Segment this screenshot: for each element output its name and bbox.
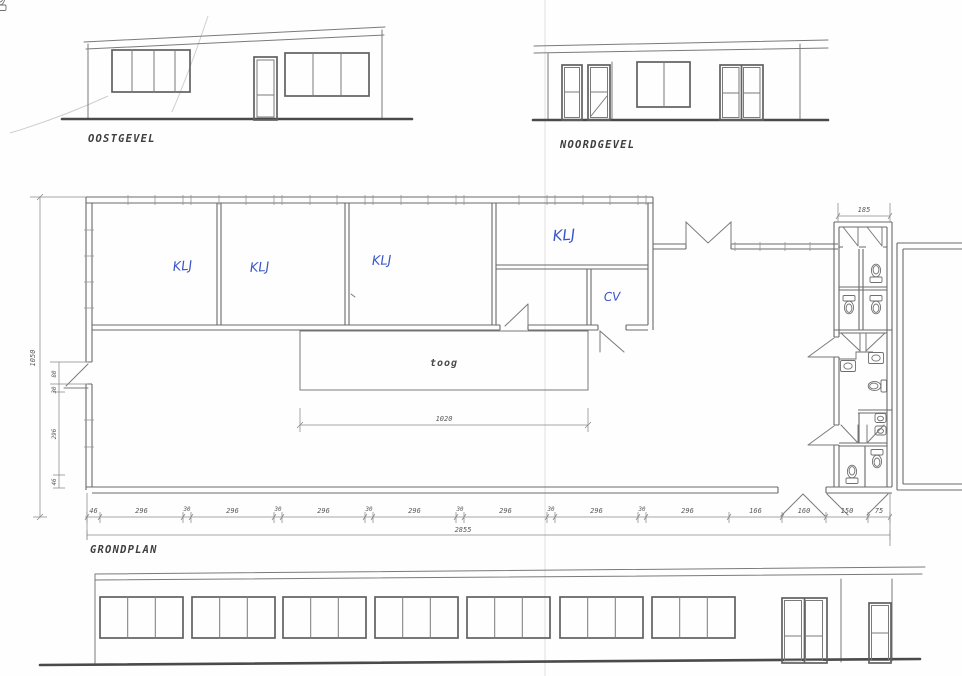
floor-plan-walls xyxy=(86,197,892,493)
south-ground-line xyxy=(40,659,920,665)
toilet-6 xyxy=(846,465,858,483)
dim-b10: 30 xyxy=(547,507,555,513)
north-double-door xyxy=(720,65,763,120)
dim-b2: 30 xyxy=(183,507,191,513)
dim-b15: 160 xyxy=(798,507,811,515)
north-elevation: NOORDGEVEL xyxy=(533,40,828,151)
north-door-2 xyxy=(588,65,610,120)
adjacent-structure-walls xyxy=(897,243,962,490)
urinal-2 xyxy=(875,426,886,435)
dim-left-30: 30 xyxy=(52,386,58,394)
north-building-outline xyxy=(534,40,828,120)
washroom-counter xyxy=(839,352,873,359)
scan-stray-curves xyxy=(10,16,208,133)
bar-counter-label: toog xyxy=(430,358,458,369)
dim-b14: 166 xyxy=(749,507,762,515)
dim-b1: 296 xyxy=(135,507,148,515)
dim-left-296: 296 xyxy=(52,428,58,439)
south-window-6 xyxy=(560,597,643,638)
stray-mark xyxy=(351,294,355,297)
dim-b12: 30 xyxy=(638,507,646,513)
north-window xyxy=(637,62,690,107)
room-label-klj-1: KLJ xyxy=(172,259,193,275)
south-elevation xyxy=(40,567,925,665)
south-window-2 xyxy=(192,597,275,638)
scanned-plan-drawing: OOSTGEVEL NOORDGEVEL xyxy=(0,0,962,676)
left-side-dim-line xyxy=(50,362,88,488)
south-window-3 xyxy=(283,597,366,638)
floor-plan-label: GRONDPLAN xyxy=(90,544,158,556)
east-door xyxy=(254,57,277,120)
dim-b8: 30 xyxy=(456,507,464,513)
dim-b16: 150 xyxy=(841,507,854,515)
south-single-door xyxy=(869,603,891,663)
dim-b0: 46 xyxy=(89,507,97,515)
architectural-drawing-sheet: OOSTGEVEL NOORDGEVEL xyxy=(0,0,962,676)
toilet-2 xyxy=(870,264,882,282)
dim-b3: 296 xyxy=(226,507,239,515)
south-window-1 xyxy=(100,597,183,638)
south-window-5 xyxy=(467,597,550,638)
bottom-dim-line xyxy=(85,493,890,546)
total-width-dim-line xyxy=(87,530,890,540)
room-label-cv: CV xyxy=(604,289,622,304)
floor-plan: toog KLJ KLJ KLJ KLJ CV xyxy=(0,0,962,556)
urinal-1 xyxy=(875,414,886,423)
toilet-3 xyxy=(843,296,855,314)
dim-b17: 75 xyxy=(875,507,883,515)
south-window-4 xyxy=(375,597,458,638)
dim-total-width: 2855 xyxy=(455,526,472,534)
dim-left-80: 80 xyxy=(52,370,58,377)
east-building-outline xyxy=(84,27,385,119)
dim-b11: 296 xyxy=(590,507,603,515)
dim-b4: 30 xyxy=(274,507,282,513)
south-double-door xyxy=(782,598,827,663)
room-label-klj-4: KLJ xyxy=(552,225,576,245)
toilet-4 xyxy=(870,296,882,314)
dim-b9: 296 xyxy=(499,507,512,515)
dim-b13: 296 xyxy=(681,507,694,515)
wall-window-ticks xyxy=(84,195,810,447)
toilet-1 xyxy=(0,0,6,11)
dim-b5: 296 xyxy=(317,507,330,515)
toilet-7 xyxy=(871,450,883,468)
dim-left-46: 46 xyxy=(52,478,58,485)
east-window-left xyxy=(112,50,190,92)
dim-sanitary-width: 185 xyxy=(858,206,871,214)
dim-bar-length: 1020 xyxy=(436,415,453,423)
east-elevation: OOSTGEVEL xyxy=(10,16,412,145)
dim-overall-depth: 1050 xyxy=(29,350,37,367)
sanitary-fixtures xyxy=(0,0,887,483)
sink-2 xyxy=(869,353,884,364)
east-elevation-label: OOSTGEVEL xyxy=(88,133,156,145)
bottom-dim-ticks xyxy=(85,512,892,523)
east-window-right xyxy=(285,53,369,96)
north-door-1 xyxy=(562,65,582,120)
room-label-klj-3: KLJ xyxy=(372,253,392,269)
south-window-7 xyxy=(652,597,735,638)
north-elevation-label: NOORDGEVEL xyxy=(559,139,635,151)
overall-depth-dim-line xyxy=(30,194,86,520)
dim-b7: 296 xyxy=(408,507,421,515)
toilet-5 xyxy=(868,380,886,392)
sink-1 xyxy=(841,361,856,372)
dim-b6: 30 xyxy=(365,507,373,513)
room-label-klj-2: KLJ xyxy=(249,260,270,276)
